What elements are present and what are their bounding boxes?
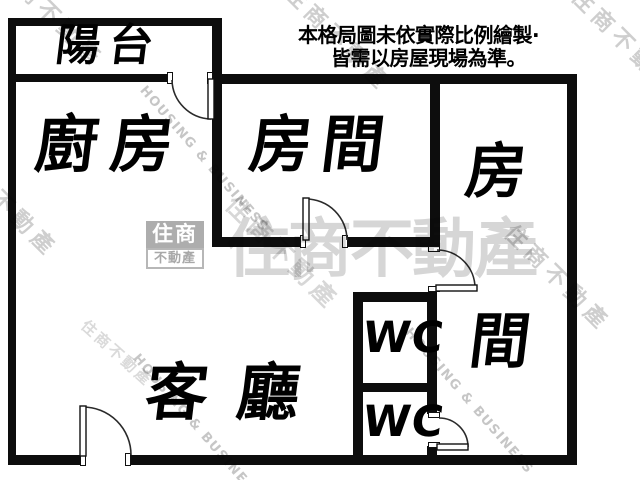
- room-label-bedroom-right-char1: 房: [462, 142, 529, 202]
- room-label-wc-upper: WC: [360, 317, 446, 360]
- room-label-bedroom-top: 房間: [246, 114, 398, 176]
- room-label-kitchen: 廚房: [32, 114, 190, 176]
- door-symbols-layer: [0, 0, 640, 480]
- brand-logo-bottom-text: 不動產: [146, 248, 204, 269]
- floor-plan: 陽台 廚房 房間 房 間 客 廳 WC WC 本格局圖未依實際比例繪製· 皆需以…: [0, 0, 640, 480]
- entrance-door: [80, 406, 131, 456]
- bedroom-top-door: [303, 198, 347, 240]
- room-label-balcony: 陽台: [53, 24, 164, 68]
- brand-logo-box: 住商 不動產: [146, 221, 204, 269]
- room-label-bedroom-right-char2: 間: [466, 312, 533, 372]
- disclaimer-line1: 本格局圖未依實際比例繪製·: [298, 25, 539, 45]
- brand-logo-top-text: 住商: [146, 221, 204, 248]
- bedroom-right-door: [436, 250, 477, 291]
- room-label-living-room: 客 廳: [142, 362, 307, 424]
- room-label-wc-lower: WC: [360, 401, 446, 444]
- disclaimer-line2: 皆需以房屋現場為準。: [331, 48, 526, 68]
